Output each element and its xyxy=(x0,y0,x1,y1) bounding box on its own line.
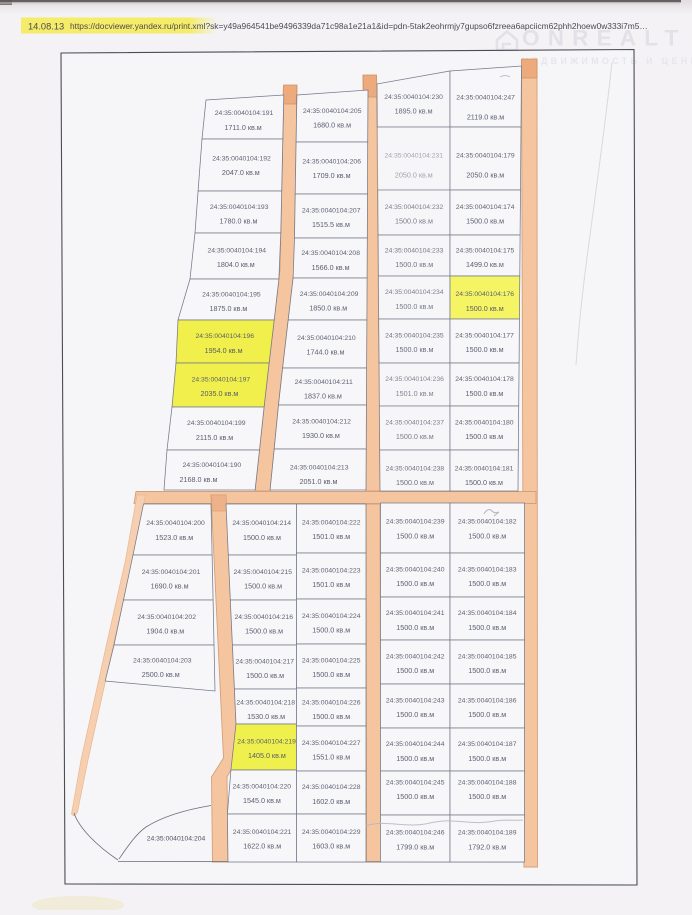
svg-text:1500.0 кв.м: 1500.0 кв.м xyxy=(396,666,434,675)
svg-text:24:35:0040104:194: 24:35:0040104:194 xyxy=(208,247,267,254)
svg-text:24:35:0040104:230: 24:35:0040104:230 xyxy=(384,94,443,101)
svg-text:1850.0 кв.м: 1850.0 кв.м xyxy=(309,304,347,313)
svg-text:24:35:0040104:226: 24:35:0040104:226 xyxy=(302,699,361,706)
svg-text:1500.0 кв.м: 1500.0 кв.м xyxy=(396,792,434,801)
svg-text:1500.0 кв.м: 1500.0 кв.м xyxy=(466,345,504,354)
svg-text:1500.0 кв.м: 1500.0 кв.м xyxy=(466,217,504,226)
svg-text:24:35:0040104:231: 24:35:0040104:231 xyxy=(385,152,444,159)
svg-text:24:35:0040104:228: 24:35:0040104:228 xyxy=(302,784,361,791)
svg-text:1622.0 кв.м: 1622.0 кв.м xyxy=(243,842,281,851)
svg-text:1500.0 кв.м: 1500.0 кв.м xyxy=(246,671,284,680)
svg-text:2051.0 кв.м: 2051.0 кв.м xyxy=(300,477,338,486)
svg-text:24:35:0040104:182: 24:35:0040104:182 xyxy=(458,519,517,526)
svg-text:14.08.13: 14.08.13 xyxy=(28,22,64,32)
svg-text:24:35:0040104:245: 24:35:0040104:245 xyxy=(386,780,445,787)
svg-text:1895.0 кв.м: 1895.0 кв.м xyxy=(395,107,433,116)
svg-text:24:35:0040104:184: 24:35:0040104:184 xyxy=(458,610,517,617)
svg-text:2168.0 кв.м: 2168.0 кв.м xyxy=(180,475,218,484)
svg-text:1500.0 кв.м: 1500.0 кв.м xyxy=(468,531,506,540)
svg-text:2500.0 кв.м: 2500.0 кв.м xyxy=(142,670,180,679)
svg-text:1501.0 кв.м: 1501.0 кв.м xyxy=(396,389,434,398)
svg-text:2115.0 кв.м: 2115.0 кв.м xyxy=(196,433,233,442)
svg-text:24:35:0040104:235: 24:35:0040104:235 xyxy=(385,333,444,340)
svg-text:1501.0 кв.м: 1501.0 кв.м xyxy=(312,580,350,589)
svg-text:1500.0 кв.м: 1500.0 кв.м xyxy=(468,666,506,675)
svg-text:24:35:0040104:241: 24:35:0040104:241 xyxy=(386,610,445,617)
svg-text:1500.0 кв.м: 1500.0 кв.м xyxy=(396,579,434,588)
svg-text:24:35:0040104:199: 24:35:0040104:199 xyxy=(187,420,246,427)
svg-text:1500.0 кв.м: 1500.0 кв.м xyxy=(312,670,350,679)
svg-text:1500.0 кв.м: 1500.0 кв.м xyxy=(312,626,350,635)
svg-text:1780.0 кв.м: 1780.0 кв.м xyxy=(220,217,258,226)
svg-text:1711.0 кв.м: 1711.0 кв.м xyxy=(224,123,261,132)
svg-text:1680.0 кв.м: 1680.0 кв.м xyxy=(313,121,351,130)
svg-text:24:35:0040104:218: 24:35:0040104:218 xyxy=(236,699,295,706)
svg-text:24:35:0040104:221: 24:35:0040104:221 xyxy=(233,829,292,836)
svg-text:24:35:0040104:219: 24:35:0040104:219 xyxy=(237,738,296,745)
svg-text:1875.0 кв.м: 1875.0 кв.м xyxy=(209,304,247,313)
svg-text:1799.0 кв.м: 1799.0 кв.м xyxy=(396,842,434,851)
svg-text:24:35:0040104:225: 24:35:0040104:225 xyxy=(302,658,361,665)
svg-text:24:35:0040104:189: 24:35:0040104:189 xyxy=(458,830,517,837)
svg-text:1530.0 кв.м: 1530.0 кв.м xyxy=(247,712,285,721)
svg-text:1405.0 кв.м: 1405.0 кв.м xyxy=(248,751,286,760)
svg-text:1500.0 кв.м: 1500.0 кв.м xyxy=(395,217,433,226)
svg-text:1500.0 кв.м: 1500.0 кв.м xyxy=(395,260,433,269)
svg-text:1500.0 кв.м: 1500.0 кв.м xyxy=(312,712,350,721)
svg-text:24:35:0040104:192: 24:35:0040104:192 xyxy=(212,155,271,162)
svg-text:1792.0 кв.м: 1792.0 кв.м xyxy=(468,842,506,851)
svg-text:24:35:0040104:181: 24:35:0040104:181 xyxy=(455,466,514,473)
svg-text:1500.0 кв.м: 1500.0 кв.м xyxy=(396,531,434,540)
svg-text:1690.0 кв.м: 1690.0 кв.м xyxy=(151,582,189,591)
svg-text:24:35:0040104:223: 24:35:0040104:223 xyxy=(302,567,361,574)
svg-text:1500.0 кв.м: 1500.0 кв.м xyxy=(468,754,506,763)
svg-text:1500.0 кв.м: 1500.0 кв.м xyxy=(465,432,503,441)
svg-text:2047.0 кв.м: 2047.0 кв.м xyxy=(222,168,260,177)
svg-text:24:35:0040104:191: 24:35:0040104:191 xyxy=(215,110,274,117)
svg-text:1500.0 кв.м: 1500.0 кв.м xyxy=(396,754,434,763)
svg-text:24:35:0040104:202: 24:35:0040104:202 xyxy=(137,614,196,621)
svg-text:24:35:0040104:186: 24:35:0040104:186 xyxy=(458,698,517,705)
svg-text:24:35:0040104:242: 24:35:0040104:242 xyxy=(386,654,445,661)
svg-text:24:35:0040104:185: 24:35:0040104:185 xyxy=(458,654,517,661)
svg-text:24:35:0040104:234: 24:35:0040104:234 xyxy=(385,289,444,296)
svg-text:24:35:0040104:212: 24:35:0040104:212 xyxy=(292,419,351,426)
svg-text:1500.0 кв.м: 1500.0 кв.м xyxy=(465,478,503,487)
svg-text:24:35:0040104:188: 24:35:0040104:188 xyxy=(458,780,517,787)
svg-text:1500.0 кв.м: 1500.0 кв.м xyxy=(468,792,506,801)
svg-text:1500.0 кв.м: 1500.0 кв.м xyxy=(468,579,506,588)
svg-text:НЕДВИЖИМОСТЬ И ЦЕНЫ: НЕДВИЖИМОСТЬ И ЦЕНЫ xyxy=(522,56,692,66)
svg-text:24:35:0040104:174: 24:35:0040104:174 xyxy=(456,204,515,211)
svg-text:24:35:0040104:227: 24:35:0040104:227 xyxy=(302,740,361,747)
svg-text:24:35:0040104:233: 24:35:0040104:233 xyxy=(385,248,444,255)
svg-text:24:35:0040104:180: 24:35:0040104:180 xyxy=(455,420,514,427)
svg-text:24:35:0040104:244: 24:35:0040104:244 xyxy=(386,741,445,748)
svg-text:24:35:0040104:211: 24:35:0040104:211 xyxy=(295,379,353,386)
svg-text:24:35:0040104:206: 24:35:0040104:206 xyxy=(302,158,361,165)
svg-text:24:35:0040104:215: 24:35:0040104:215 xyxy=(234,569,293,576)
svg-text:24:35:0040104:208: 24:35:0040104:208 xyxy=(301,250,360,257)
svg-text:1551.0 кв.м: 1551.0 кв.м xyxy=(312,753,350,762)
svg-text:24:35:0040104:224: 24:35:0040104:224 xyxy=(302,613,361,620)
svg-text:24:35:0040104:204: 24:35:0040104:204 xyxy=(147,836,206,843)
svg-text:2050.0 кв.м: 2050.0 кв.м xyxy=(466,171,504,180)
svg-text:1500.0 кв.м: 1500.0 кв.м xyxy=(396,345,434,354)
svg-text:24:35:0040104:217: 24:35:0040104:217 xyxy=(236,659,295,666)
svg-text:1603.0 кв.м: 1603.0 кв.м xyxy=(312,842,350,851)
svg-text:1709.0 кв.м: 1709.0 кв.м xyxy=(313,171,351,180)
svg-text:24:35:0040104:190: 24:35:0040104:190 xyxy=(183,462,242,469)
svg-text:24:35:0040104:200: 24:35:0040104:200 xyxy=(146,520,205,527)
svg-text:1500.0 кв.м: 1500.0 кв.м xyxy=(244,582,282,591)
svg-text:1523.0 кв.м: 1523.0 кв.м xyxy=(155,533,193,542)
svg-text:24:35:0040104:216: 24:35:0040104:216 xyxy=(235,614,294,621)
svg-text:1500.0 кв.м: 1500.0 кв.м xyxy=(396,432,434,441)
svg-text:1499.0 кв.м: 1499.0 кв.м xyxy=(466,260,504,269)
svg-text:24:35:0040104:220: 24:35:0040104:220 xyxy=(233,784,292,791)
svg-text:24:35:0040104:196: 24:35:0040104:196 xyxy=(196,333,255,340)
svg-text:1500.0 кв.м: 1500.0 кв.м xyxy=(395,302,433,311)
svg-text:1545.0 кв.м: 1545.0 кв.м xyxy=(243,796,281,805)
svg-text:24:35:0040104:176: 24:35:0040104:176 xyxy=(456,291,515,298)
svg-text:1500.0 кв.м: 1500.0 кв.м xyxy=(396,478,434,487)
svg-text:24:35:0040104:183: 24:35:0040104:183 xyxy=(458,567,517,574)
svg-text:24:35:0040104:205: 24:35:0040104:205 xyxy=(303,108,362,115)
svg-text:24:35:0040104:207: 24:35:0040104:207 xyxy=(302,208,361,215)
svg-text:24:35:0040104:246: 24:35:0040104:246 xyxy=(386,830,445,837)
svg-text:24:35:0040104:239: 24:35:0040104:239 xyxy=(386,519,445,526)
svg-text:1500.0 кв.м: 1500.0 кв.м xyxy=(396,623,434,632)
svg-text:24:35:0040104:232: 24:35:0040104:232 xyxy=(385,204,444,211)
svg-text:1837.0 кв.м: 1837.0 кв.м xyxy=(304,392,342,401)
svg-text:24:35:0040104:240: 24:35:0040104:240 xyxy=(386,567,445,574)
svg-text:24:35:0040104:210: 24:35:0040104:210 xyxy=(297,335,356,342)
svg-text:24:35:0040104:229: 24:35:0040104:229 xyxy=(302,829,361,836)
svg-text:24:35:0040104:177: 24:35:0040104:177 xyxy=(455,333,514,340)
svg-text:24:35:0040104:175: 24:35:0040104:175 xyxy=(456,248,515,255)
svg-text:1500.0 кв.м: 1500.0 кв.м xyxy=(468,623,506,632)
svg-text:24:35:0040104:197: 24:35:0040104:197 xyxy=(192,377,251,384)
svg-text:ONREALT: ONREALT xyxy=(522,26,686,51)
svg-text:1566.0 кв.м: 1566.0 кв.м xyxy=(312,263,350,272)
svg-text:24:35:0040104:237: 24:35:0040104:237 xyxy=(385,420,444,427)
svg-text:1500.0 кв.м: 1500.0 кв.м xyxy=(468,710,506,719)
svg-text:24:35:0040104:179: 24:35:0040104:179 xyxy=(456,152,515,159)
svg-text:2119.0 кв.м: 2119.0 кв.м xyxy=(467,113,504,122)
svg-text:1500.0 кв.м: 1500.0 кв.м xyxy=(466,304,504,313)
svg-text:24:35:0040104:201: 24:35:0040104:201 xyxy=(142,569,201,576)
svg-text:1500.0 кв.м: 1500.0 кв.м xyxy=(396,710,434,719)
svg-text:24:35:0040104:178: 24:35:0040104:178 xyxy=(455,376,514,383)
svg-text:1602.0 кв.м: 1602.0 кв.м xyxy=(312,797,350,806)
svg-text:2050.0 кв.м: 2050.0 кв.м xyxy=(395,171,433,180)
svg-text:24:35:0040104:195: 24:35:0040104:195 xyxy=(202,292,261,299)
svg-text:1804.0 кв.м: 1804.0 кв.м xyxy=(217,260,255,269)
svg-text:24:35:0040104:243: 24:35:0040104:243 xyxy=(386,698,445,705)
svg-text:24:35:0040104:214: 24:35:0040104:214 xyxy=(232,520,291,527)
svg-text:24:35:0040104:222: 24:35:0040104:222 xyxy=(302,519,361,526)
svg-text:24:35:0040104:236: 24:35:0040104:236 xyxy=(385,376,444,383)
svg-text:1744.0 кв.м: 1744.0 кв.м xyxy=(307,348,345,357)
svg-text:24:35:0040104:213: 24:35:0040104:213 xyxy=(290,465,349,472)
svg-text:1500.0 кв.м: 1500.0 кв.м xyxy=(243,533,281,542)
svg-text:24:35:0040104:193: 24:35:0040104:193 xyxy=(210,204,269,211)
svg-text:24:35:0040104:247: 24:35:0040104:247 xyxy=(456,94,515,101)
svg-text:24:35:0040104:203: 24:35:0040104:203 xyxy=(133,658,192,665)
svg-text:24:35:0040104:187: 24:35:0040104:187 xyxy=(458,741,517,748)
svg-text:1515.5 кв.м: 1515.5 кв.м xyxy=(312,220,350,229)
svg-text:24:35:0040104:209: 24:35:0040104:209 xyxy=(300,291,359,298)
svg-text:24:35:0040104:238: 24:35:0040104:238 xyxy=(386,466,445,473)
svg-text:1904.0 кв.м: 1904.0 кв.м xyxy=(146,627,184,636)
svg-text:1500.0 кв.м: 1500.0 кв.м xyxy=(245,627,283,636)
svg-text:1501.0 кв.м: 1501.0 кв.м xyxy=(312,532,350,541)
svg-text:2035.0 кв.м: 2035.0 кв.м xyxy=(200,389,238,398)
svg-text:1954.0 кв.м: 1954.0 кв.м xyxy=(205,346,243,355)
svg-text:1930.0 кв.м: 1930.0 кв.м xyxy=(302,431,340,440)
svg-text:1500.0 кв.м: 1500.0 кв.м xyxy=(465,389,503,398)
